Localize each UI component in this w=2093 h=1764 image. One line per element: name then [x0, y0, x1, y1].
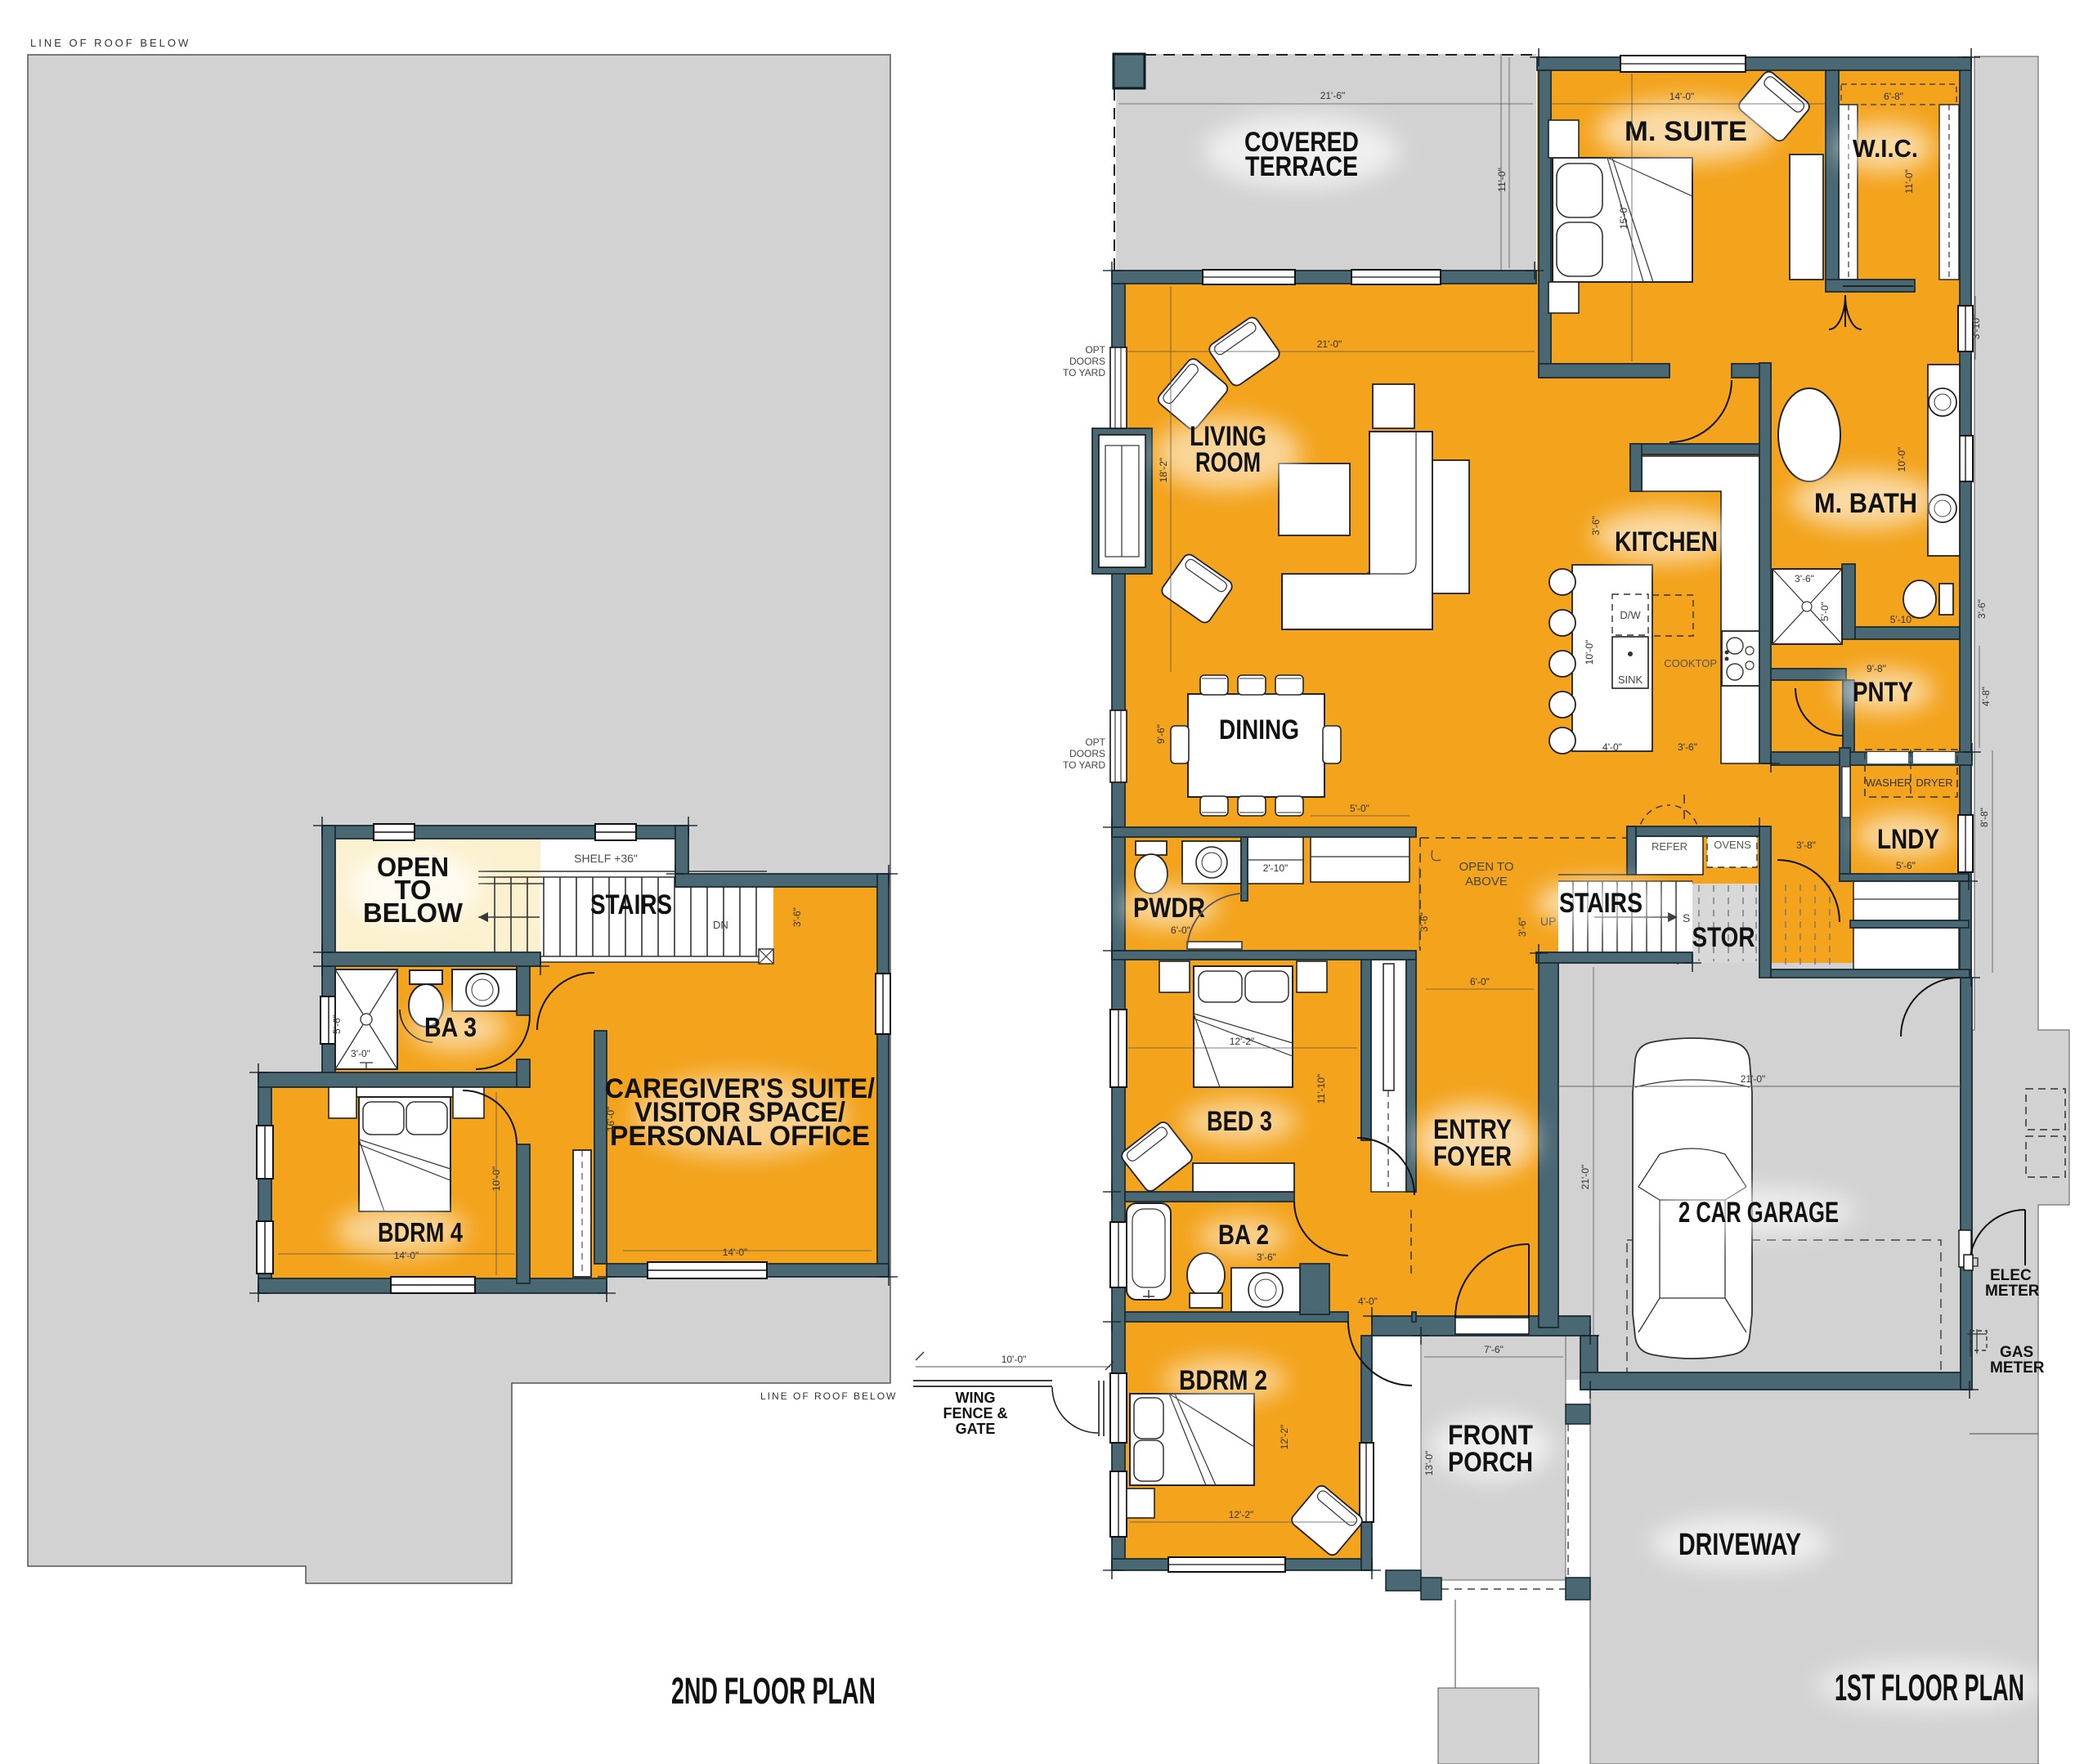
svg-text:BA 3: BA 3 — [424, 1012, 477, 1042]
svg-text:3'-6": 3'-6" — [1590, 516, 1602, 535]
svg-text:REFER: REFER — [1652, 840, 1687, 853]
svg-text:12'-2": 12'-2" — [1279, 1425, 1290, 1450]
svg-text:1ST FLOOR PLAN: 1ST FLOOR PLAN — [1835, 1667, 2024, 1708]
svg-text:GAS: GAS — [2000, 1344, 2033, 1361]
svg-text:4'-0": 4'-0" — [1602, 741, 1622, 753]
svg-text:DRIVEWAY: DRIVEWAY — [1678, 1528, 1801, 1562]
svg-text:18'-2": 18'-2" — [1158, 458, 1169, 483]
svg-text:BED 3: BED 3 — [1207, 1106, 1272, 1137]
svg-text:S: S — [1683, 911, 1690, 925]
svg-text:21'-0": 21'-0" — [1317, 338, 1342, 350]
svg-text:2ND FLOOR PLAN: 2ND FLOOR PLAN — [671, 1670, 876, 1712]
svg-text:TERRACE: TERRACE — [1245, 151, 1358, 182]
svg-text:3'-6": 3'-6" — [1678, 741, 1697, 753]
svg-text:3'-10": 3'-10" — [1970, 315, 1982, 340]
svg-text:11'-0": 11'-0" — [1496, 168, 1508, 192]
svg-text:11'-10": 11'-10" — [1315, 1074, 1327, 1104]
svg-text:LNDY: LNDY — [1877, 824, 1939, 855]
svg-text:METER: METER — [1985, 1283, 2040, 1300]
svg-text:9'-6": 9'-6" — [1155, 724, 1167, 744]
svg-text:DRYER: DRYER — [1916, 777, 1952, 789]
svg-text:5'-6": 5'-6" — [1896, 860, 1916, 871]
svg-text:PORCH: PORCH — [1448, 1447, 1533, 1478]
svg-text:OPT: OPT — [1085, 736, 1105, 748]
svg-text:7'-6": 7'-6" — [1484, 1344, 1504, 1355]
svg-text:21'-6": 21'-6" — [1320, 90, 1346, 101]
svg-text:PWDR: PWDR — [1133, 893, 1205, 924]
svg-text:8'-8": 8'-8" — [1979, 808, 1990, 827]
svg-text:LINE OF ROOF BELOW: LINE OF ROOF BELOW — [760, 1390, 897, 1402]
svg-text:5'-10": 5'-10" — [1890, 614, 1916, 625]
svg-text:WASHER: WASHER — [1866, 777, 1912, 789]
svg-text:BELOW: BELOW — [363, 898, 464, 928]
svg-text:11'-0": 11'-0" — [1903, 169, 1915, 194]
svg-text:M. SUITE: M. SUITE — [1625, 116, 1747, 147]
svg-text:3'-6": 3'-6" — [1418, 912, 1430, 932]
svg-text:3'-6": 3'-6" — [1257, 1251, 1276, 1263]
svg-text:10'-0": 10'-0" — [1896, 447, 1907, 472]
svg-text:2'-10": 2'-10" — [1263, 862, 1289, 874]
svg-text:PERSONAL OFFICE: PERSONAL OFFICE — [610, 1121, 870, 1152]
svg-text:4'-0": 4'-0" — [1358, 1296, 1378, 1307]
svg-text:OVENS: OVENS — [1714, 839, 1751, 851]
svg-text:3'-6": 3'-6" — [791, 907, 803, 927]
svg-text:3'-0": 3'-0" — [351, 1048, 370, 1059]
svg-text:5'-6": 5'-6" — [331, 1014, 343, 1034]
svg-text:LINE OF ROOF BELOW: LINE OF ROOF BELOW — [30, 37, 190, 49]
svg-text:13'-0": 13'-0" — [1423, 1451, 1435, 1476]
svg-text:21'-0": 21'-0" — [1580, 1165, 1591, 1190]
svg-text:14'-0": 14'-0" — [394, 1250, 419, 1261]
svg-text:ABOVE: ABOVE — [1465, 875, 1508, 889]
svg-text:15'-0": 15'-0" — [1618, 204, 1629, 230]
svg-text:TO YARD: TO YARD — [1063, 759, 1105, 771]
svg-text:21'-0": 21'-0" — [1741, 1073, 1766, 1085]
svg-text:BDRM 2: BDRM 2 — [1179, 1365, 1267, 1396]
svg-text:FENCE &: FENCE & — [943, 1405, 1007, 1421]
svg-text:10'-0": 10'-0" — [1002, 1354, 1027, 1365]
svg-text:3'-6": 3'-6" — [1976, 599, 1988, 619]
svg-text:DINING: DINING — [1219, 714, 1299, 745]
svg-text:BDRM 4: BDRM 4 — [378, 1217, 464, 1247]
svg-text:3'-6": 3'-6" — [1795, 573, 1814, 584]
svg-text:3'-6": 3'-6" — [1517, 917, 1528, 937]
svg-text:METER: METER — [1990, 1359, 2045, 1377]
svg-text:OPEN TO: OPEN TO — [1459, 860, 1514, 874]
svg-text:14'-0": 14'-0" — [1669, 91, 1695, 102]
svg-text:D/W: D/W — [1620, 609, 1641, 621]
svg-text:FOYER: FOYER — [1433, 1141, 1512, 1172]
svg-text:14'-0": 14'-0" — [723, 1247, 748, 1258]
svg-text:DOORS: DOORS — [1069, 748, 1105, 759]
svg-text:SHELF +36": SHELF +36" — [574, 852, 638, 865]
svg-text:6'-8": 6'-8" — [1884, 91, 1903, 102]
svg-text:BA 2: BA 2 — [1218, 1220, 1269, 1251]
svg-text:OPT: OPT — [1085, 344, 1105, 356]
svg-text:6'-0": 6'-0" — [1171, 925, 1190, 936]
svg-text:STAIRS: STAIRS — [590, 889, 672, 920]
svg-text:6'-0": 6'-0" — [1470, 976, 1490, 987]
svg-text:5'-0": 5'-0" — [1819, 602, 1831, 621]
svg-text:ELEC: ELEC — [1990, 1267, 2032, 1284]
svg-text:TO YARD: TO YARD — [1063, 367, 1105, 378]
svg-text:12'-2": 12'-2" — [1230, 1036, 1255, 1047]
svg-text:PNTY: PNTY — [1853, 677, 1913, 708]
svg-text:10'-0": 10'-0" — [1584, 640, 1595, 665]
svg-text:3'-8": 3'-8" — [1796, 839, 1816, 851]
svg-text:5'-0": 5'-0" — [1350, 803, 1369, 814]
svg-text:SINK: SINK — [1618, 674, 1643, 686]
svg-text:DN: DN — [713, 919, 728, 931]
svg-text:KITCHEN: KITCHEN — [1615, 526, 1718, 557]
svg-text:COOKTOP: COOKTOP — [1664, 657, 1717, 669]
svg-text:12'-2": 12'-2" — [1229, 1509, 1254, 1520]
svg-text:M. BATH: M. BATH — [1814, 488, 1917, 519]
svg-text:4'-8": 4'-8" — [1980, 687, 1992, 706]
svg-text:DOORS: DOORS — [1069, 356, 1105, 367]
svg-text:GATE: GATE — [956, 1421, 996, 1437]
svg-text:16'-0": 16'-0" — [605, 1107, 616, 1132]
svg-text:9'-8": 9'-8" — [1867, 663, 1886, 674]
svg-text:STAIRS: STAIRS — [1559, 888, 1643, 919]
svg-text:STOR: STOR — [1692, 922, 1755, 953]
svg-text:2 CAR GARAGE: 2 CAR GARAGE — [1678, 1197, 1839, 1229]
svg-text:ROOM: ROOM — [1195, 447, 1261, 478]
svg-text:WING: WING — [956, 1390, 996, 1406]
svg-text:W.I.C.: W.I.C. — [1853, 134, 1918, 163]
